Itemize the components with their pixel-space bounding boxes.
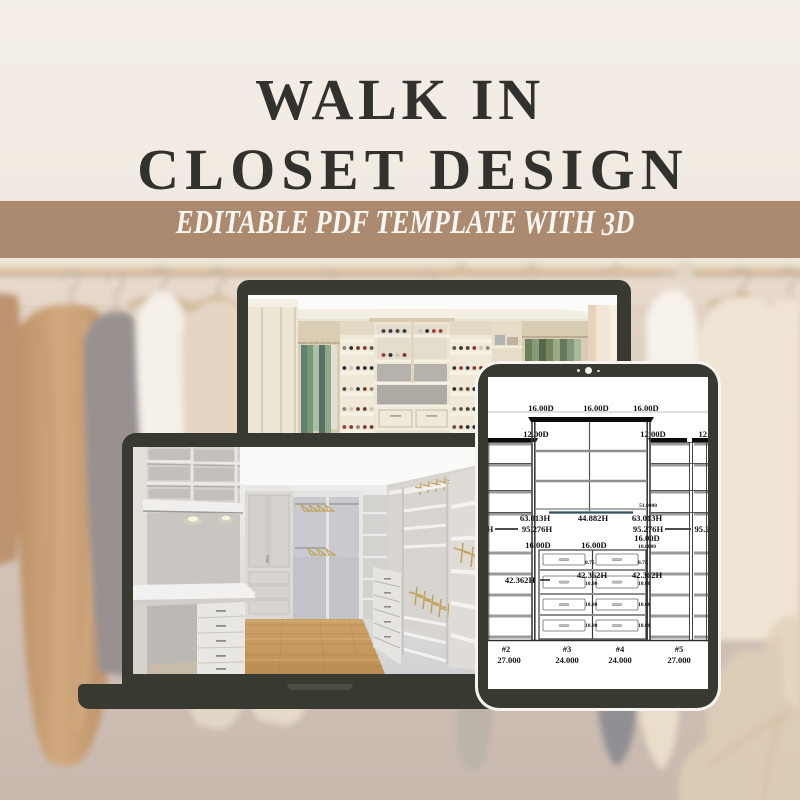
- svg-text:10.00: 10.00: [585, 623, 598, 629]
- svg-text:95.276H: 95.276H: [522, 524, 553, 534]
- svg-text:#4: #4: [616, 644, 625, 654]
- svg-text:12.00D: 12.00D: [523, 429, 549, 439]
- svg-text:42.362H: 42.362H: [632, 570, 663, 580]
- svg-text:10.00: 10.00: [638, 602, 651, 608]
- svg-text:16.00D: 16.00D: [581, 540, 607, 550]
- svg-text:42.362H: 42.362H: [577, 570, 608, 580]
- svg-text:16.00D: 16.00D: [633, 403, 659, 413]
- svg-text:16.00D: 16.00D: [525, 540, 551, 550]
- svg-text:12.0: 12.0: [698, 429, 708, 439]
- svg-text:51.0000: 51.0000: [639, 503, 657, 509]
- svg-text:10.00: 10.00: [585, 602, 598, 608]
- svg-text:24.000: 24.000: [608, 655, 631, 665]
- svg-text:63.013H: 63.013H: [632, 513, 663, 523]
- svg-text:10.00: 10.00: [638, 581, 651, 587]
- svg-text:27.000: 27.000: [667, 655, 690, 665]
- svg-text:16.00D: 16.00D: [583, 403, 609, 413]
- svg-text:#5: #5: [675, 644, 684, 654]
- svg-text:#2: #2: [502, 644, 511, 654]
- svg-text:12.00D: 12.00D: [640, 429, 666, 439]
- svg-text:16.00D: 16.00D: [634, 533, 660, 543]
- svg-text:95.2: 95.2: [694, 524, 708, 534]
- svg-text:24.000: 24.000: [555, 655, 578, 665]
- svg-text:8.75: 8.75: [585, 560, 595, 566]
- svg-text:10.00: 10.00: [638, 623, 651, 629]
- svg-text:27.000: 27.000: [497, 655, 520, 665]
- svg-text:63.013H: 63.013H: [520, 513, 551, 523]
- svg-text:18.0000: 18.0000: [638, 544, 656, 550]
- svg-text:16.00D: 16.00D: [528, 403, 554, 413]
- svg-text:8.75: 8.75: [638, 560, 648, 566]
- svg-text:10.00: 10.00: [585, 581, 598, 587]
- svg-text:44.882H: 44.882H: [578, 513, 609, 523]
- svg-text:42.362H: 42.362H: [505, 575, 536, 585]
- svg-text:#3: #3: [563, 644, 572, 654]
